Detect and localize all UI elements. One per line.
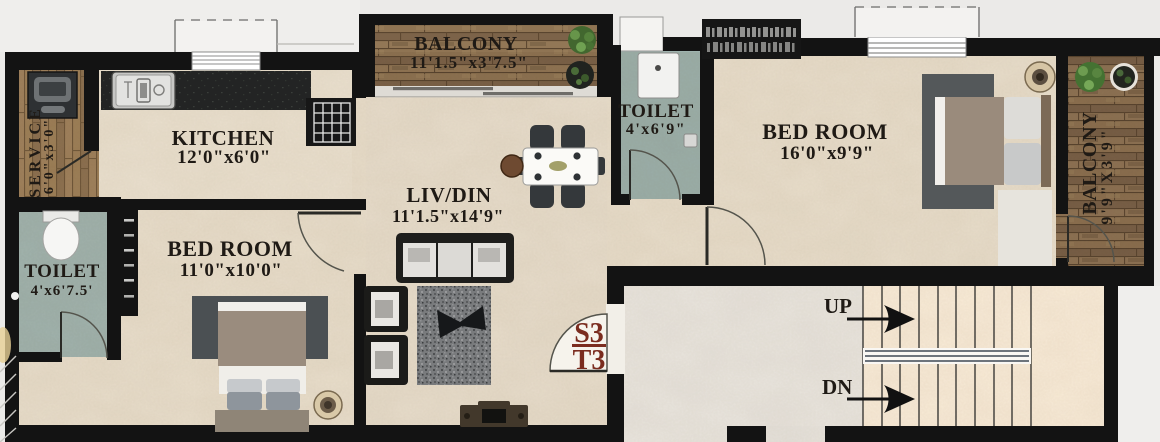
svg-text:BALCONY: BALCONY [1079, 111, 1101, 215]
svg-text:4'x6'9": 4'x6'9" [626, 121, 686, 138]
svg-text:12'0"x6'0": 12'0"x6'0" [177, 147, 271, 168]
svg-text:UP: UP [824, 294, 852, 318]
svg-text:BALCONY: BALCONY [414, 33, 518, 55]
svg-text:TOILET: TOILET [24, 261, 100, 282]
svg-text:4'x6'7.5': 4'x6'7.5' [31, 283, 94, 299]
svg-text:11'1.5"x14'9": 11'1.5"x14'9" [392, 206, 504, 226]
svg-text:BED ROOM: BED ROOM [167, 236, 293, 261]
svg-text:16'0"x9'9": 16'0"x9'9" [780, 143, 874, 164]
svg-text:LIV/DIN: LIV/DIN [406, 183, 491, 207]
svg-text:11'1.5"x3'7.5": 11'1.5"x3'7.5" [410, 53, 528, 72]
svg-text:6'0"x3'0": 6'0"x3'0" [42, 118, 57, 194]
svg-text:BED ROOM: BED ROOM [762, 119, 888, 144]
svg-text:DN: DN [822, 375, 852, 399]
svg-text:9'9"X3'9": 9'9"X3'9" [1099, 127, 1116, 224]
svg-text:TOILET: TOILET [618, 101, 694, 122]
svg-text:11'0"x10'0": 11'0"x10'0" [180, 260, 283, 281]
svg-text:T3: T3 [573, 345, 606, 376]
